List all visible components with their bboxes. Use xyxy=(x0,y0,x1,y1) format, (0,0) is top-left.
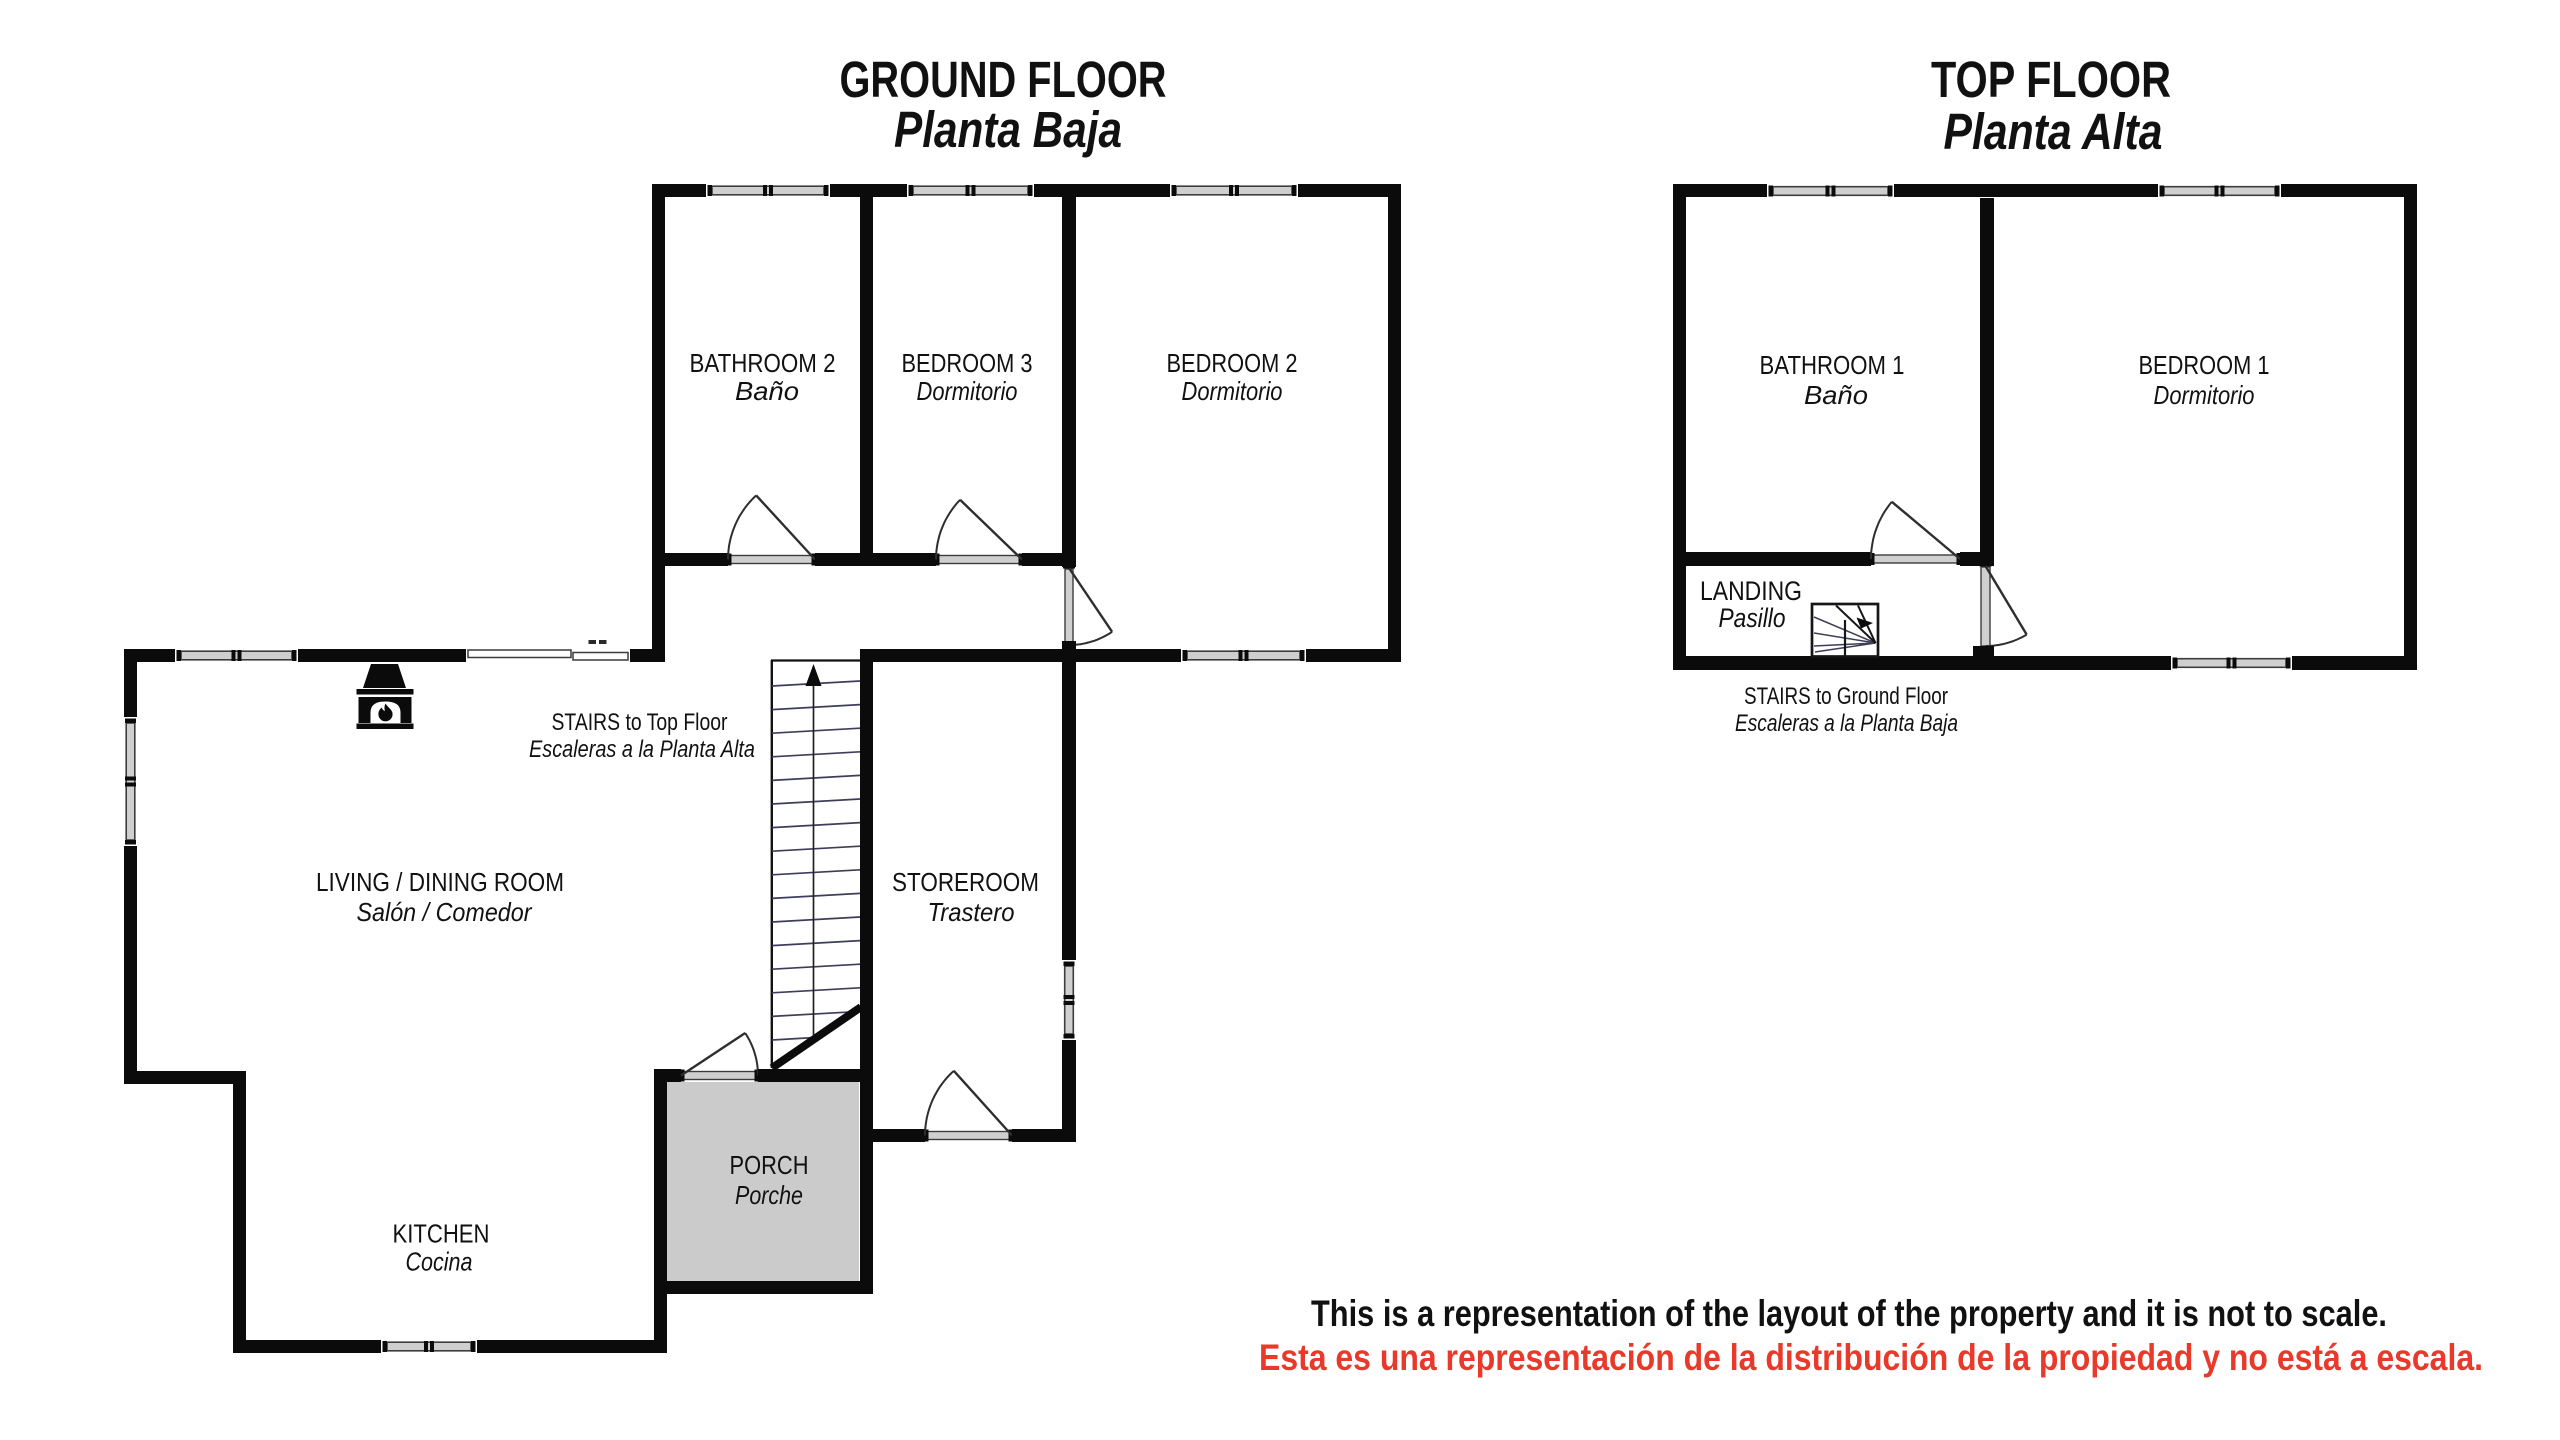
svg-text:Dormitorio: Dormitorio xyxy=(2154,380,2255,410)
svg-text:KITCHEN: KITCHEN xyxy=(393,1219,490,1249)
svg-text:BATHROOM 2: BATHROOM 2 xyxy=(690,348,836,378)
svg-text:BEDROOM 3: BEDROOM 3 xyxy=(902,348,1033,378)
svg-text:This is a representation of th: This is a representation of the layout o… xyxy=(1311,1292,2387,1334)
svg-text:Baño: Baño xyxy=(735,376,799,406)
svg-text:Escaleras a la Planta Baja: Escaleras a la Planta Baja xyxy=(1735,710,1958,737)
svg-text:Porche: Porche xyxy=(735,1180,803,1210)
svg-text:TOP FLOOR: TOP FLOOR xyxy=(1931,51,2171,108)
svg-text:Planta Alta: Planta Alta xyxy=(1944,103,2163,160)
svg-text:Dormitorio: Dormitorio xyxy=(1182,376,1283,406)
svg-text:Baño: Baño xyxy=(1804,380,1868,410)
svg-text:GROUND FLOOR: GROUND FLOOR xyxy=(840,51,1167,108)
svg-text:LIVING / DINING ROOM: LIVING / DINING ROOM xyxy=(316,867,564,897)
svg-text:LANDING: LANDING xyxy=(1700,576,1802,606)
svg-text:BEDROOM 1: BEDROOM 1 xyxy=(2139,350,2270,380)
svg-text:Salón / Comedor: Salón / Comedor xyxy=(357,897,533,927)
svg-text:Cocina: Cocina xyxy=(406,1247,473,1277)
svg-text:Esta es una representación de: Esta es una representación de la distrib… xyxy=(1259,1336,2483,1378)
svg-text:Planta Baja: Planta Baja xyxy=(894,101,1122,158)
svg-text:Dormitorio: Dormitorio xyxy=(917,376,1018,406)
svg-text:Escaleras a la Planta Alta: Escaleras a la Planta Alta xyxy=(529,736,755,763)
svg-text:STAIRS to Ground Floor: STAIRS to Ground Floor xyxy=(1744,683,1948,710)
svg-text:Trastero: Trastero xyxy=(928,897,1015,927)
svg-text:PORCH: PORCH xyxy=(730,1150,809,1180)
svg-text:STOREROOM: STOREROOM xyxy=(892,867,1039,897)
svg-text:Pasillo: Pasillo xyxy=(1719,603,1786,633)
svg-text:BATHROOM 1: BATHROOM 1 xyxy=(1760,350,1905,380)
svg-text:BEDROOM 2: BEDROOM 2 xyxy=(1167,348,1298,378)
svg-text:STAIRS to Top Floor: STAIRS to Top Floor xyxy=(552,709,728,736)
